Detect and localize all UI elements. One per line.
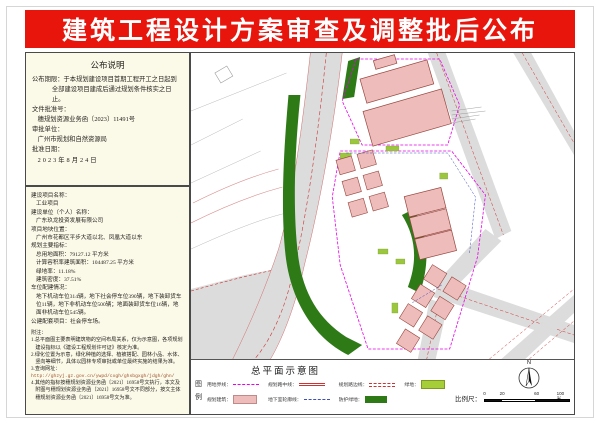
text-line: 3.查询网址： — [31, 366, 184, 373]
text-line: 1.总平面图主要表明建筑物的空间布局关系，仅为示意图，各项规划建设指标以《建设工… — [31, 337, 184, 351]
text-line: 工业项目 — [31, 200, 184, 208]
text-line: 地下机动车位314辆，地下社会停车位390辆，地下装卸货车位11辆，地下非机动车… — [31, 293, 184, 318]
notice-panel: 公布说明 公布期限：于本规划建设项目首期工程开工之日起到全部建设项目建成后通过规… — [25, 52, 190, 186]
compass-icon — [517, 366, 541, 390]
text-line: 总用地面积：79127.12 平方米 — [31, 251, 184, 259]
pink-swatch — [233, 395, 257, 404]
text-line: 批准日期： — [32, 145, 183, 155]
legend-item-basement-outline: 地下室轮廓线： — [268, 396, 330, 403]
announcement-page: 建筑工程设计方案审查及调整批后公布 公布说明 公布期限：于本规划建设项目首期工程… — [0, 0, 600, 424]
legend-key-label: 图 例 — [195, 379, 202, 404]
text-line: 项目地块位置： — [31, 226, 184, 234]
notice-title: 公布说明 — [32, 59, 183, 71]
project-lines: 建设项目名称：工业项目建设单位（个人）名称：广东玖龙投资发展有限公司项目地块位置… — [31, 192, 184, 326]
scale-bar: 0 20 60 100米 — [484, 391, 570, 404]
legend-char-li: 例 — [195, 392, 202, 402]
red-dashed-line-sample — [369, 383, 395, 387]
title-banner: 建筑工程设计方案审查及调整批后公布 — [25, 10, 575, 48]
text-line: 文件批准号： — [32, 105, 183, 115]
scale-label: 比例尺： — [455, 393, 481, 403]
text-line: 广州市花都区平步大道以北、凤凰大道以东 — [31, 234, 184, 242]
legend-item-road-centerline: 规划路中线： — [268, 381, 330, 388]
notes-lines: 附注：1.总平面图主要表明建筑物的空间布局关系，仅为示意图，各项规划建设指标以《… — [31, 330, 184, 402]
legend-char-tu: 图 — [195, 379, 202, 389]
text-line: 建设单位（个人）名称： — [31, 209, 184, 217]
text-line: 2023年8月24日 — [32, 156, 183, 166]
text-line: 广州市规划和自然资源局 — [32, 135, 183, 145]
text-line: 穗规划资源业务函〔2023〕11491号 — [32, 115, 183, 125]
legend-item-green-space: 绿地： — [404, 380, 444, 389]
scale-bar-group: 比例尺： 0 20 60 100米 — [455, 391, 570, 404]
text-line: 公布期限：于本规划建设项目首期工程开工之日起到全部建设项目建成后通过规划条件核实… — [32, 75, 183, 105]
text-line: 规划主要指标： — [31, 242, 184, 250]
north-arrow: N — [516, 360, 542, 395]
site-plan-map — [191, 53, 574, 359]
text-line: 审批单位： — [32, 125, 183, 135]
site-plan-panel: 总平面示意图 图 例 用地界线： 规划路中线： 规划路边 — [190, 52, 575, 415]
blue-dashed-line-sample — [304, 399, 330, 400]
text-line: 绿地率：11.18% — [31, 268, 184, 276]
text-line: 计算容积率建筑面积：104487.25 平方米 — [31, 259, 184, 267]
project-panel: 建设项目名称：工业项目建设单位（个人）名称：广东玖龙投资发展有限公司项目地块位置… — [25, 186, 190, 415]
map-title: 总平面示意图 — [251, 363, 320, 377]
red-double-line-sample — [299, 383, 325, 386]
dark-green-swatch — [365, 396, 387, 403]
legend-item-protective-green: 防护绿地： — [339, 396, 396, 403]
light-green-swatch — [421, 380, 445, 389]
text-line: 建设项目名称： — [31, 192, 184, 200]
legend-item-site-boundary: 用地界线： — [207, 381, 259, 388]
legend-item-road-edge: 规划路边线： — [339, 381, 396, 388]
map-footer: 总平面示意图 图 例 用地界线： 规划路中线： 规划路边 — [191, 359, 574, 411]
page-title: 建筑工程设计方案审查及调整批后公布 — [62, 11, 538, 47]
text-line: 4.其他的指标按穗规划资源业务函〔2021〕16958号文执行，本文及附图与穗规… — [31, 380, 184, 402]
magenta-dashdot-line-sample — [233, 384, 259, 385]
legend: 图 例 用地界线： 规划路中线： 规划路边线： — [195, 378, 445, 404]
text-line: 建筑密度：37.51% — [31, 276, 184, 284]
text-line: 广东玖龙投资发展有限公司 — [31, 217, 184, 225]
notice-lines: 公布期限：于本规划建设项目首期工程开工之日起到全部建设项目建成后通过规划条件核实… — [32, 75, 183, 166]
legend-item-planned-building: 规划建筑： — [207, 395, 259, 404]
text-line: 车位配建情况： — [31, 284, 184, 292]
text-line: 2.绿化位置为示意，绿化种植的选择、植被搭配、园林小品、水体、竖向等细节，具体以… — [31, 352, 184, 366]
text-line: 公建配套项目：社会停车场。 — [31, 318, 184, 326]
